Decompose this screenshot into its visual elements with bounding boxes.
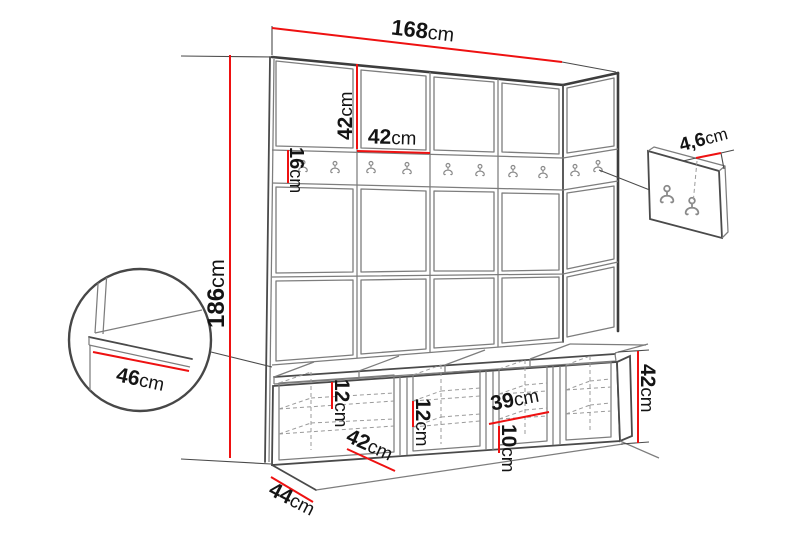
upholstered-panel <box>434 278 494 348</box>
dim-panel-depth-line <box>696 153 721 158</box>
wall-hook-icon <box>509 166 517 177</box>
upholstered-panel-return <box>567 78 614 153</box>
hook-rail-hooks <box>299 161 602 178</box>
dim-panel-depth-label: 4,6cm <box>677 123 730 156</box>
bench-right-end-face <box>617 356 632 441</box>
wall-hook-icon <box>571 165 579 176</box>
rail-front-lines <box>272 150 563 190</box>
diagram-canvas: 46cm 4,6cm 168cm 186cm 42cm 42cm 16cm <box>0 0 800 533</box>
wall-hook-icon <box>367 162 375 173</box>
dim-upper-panel-width-label: 42cm <box>368 125 417 149</box>
dim-total-height-label: 186cm <box>203 259 230 328</box>
hook-rail <box>272 149 618 190</box>
dim-bench-height-label: 42cm <box>636 364 659 413</box>
rail-return-lines <box>563 149 618 190</box>
upholstered-panel <box>434 191 494 271</box>
corner-detail-circle: 46cm <box>69 268 272 420</box>
dim-shelf-gap-middle: 12cm <box>411 398 434 447</box>
upholstered-panel <box>276 280 353 361</box>
dim-hook-rail-height: 16cm <box>285 147 307 193</box>
wall-hook-icon <box>444 164 452 175</box>
dim-hook-rail-height-label: 16cm <box>285 147 307 193</box>
dim-shelf-gap-top-label: 12cm <box>330 379 353 428</box>
wall-hook-icon <box>539 167 547 178</box>
furniture-dimension-diagram: 46cm 4,6cm 168cm 186cm 42cm 42cm 16cm <box>0 0 800 533</box>
cushion-back-line-right <box>570 344 646 345</box>
dim-bench-total-depth: 44cm <box>265 477 319 520</box>
upholstered-panel <box>502 83 559 154</box>
dim-shelf-gap-bottom: 10cm <box>497 424 520 473</box>
dim-total-width: 168cm <box>272 15 616 72</box>
wall-hook-icon <box>476 165 484 176</box>
upholstered-panel <box>361 279 426 354</box>
dim-upper-panel-height-label: 42cm <box>334 91 357 140</box>
upholstered-panel <box>502 193 559 271</box>
wall-hook-icon <box>403 163 411 174</box>
wall-hook-icon <box>594 161 602 172</box>
upholstered-panel <box>434 77 494 152</box>
dim-shelf-gap-middle-label: 12cm <box>411 398 434 447</box>
dim-shelf-gap-bottom-label: 10cm <box>497 424 520 473</box>
upholstered-panel <box>276 187 353 273</box>
upholstered-panel <box>502 277 559 343</box>
upholstered-panel-return <box>567 267 614 337</box>
detail-leader-line <box>211 352 272 367</box>
hook-panel-front <box>648 151 722 238</box>
dim-bench-total-depth-label: 44cm <box>265 478 319 521</box>
upholstered-panel-return <box>567 186 614 269</box>
wall-hook-icon <box>331 162 339 173</box>
dim-shelf-gap-top: 12cm <box>330 379 353 428</box>
upholstered-panel <box>361 189 426 272</box>
dim-total-height: 186cm <box>181 55 276 464</box>
dim-total-width-label: 168cm <box>390 15 456 47</box>
